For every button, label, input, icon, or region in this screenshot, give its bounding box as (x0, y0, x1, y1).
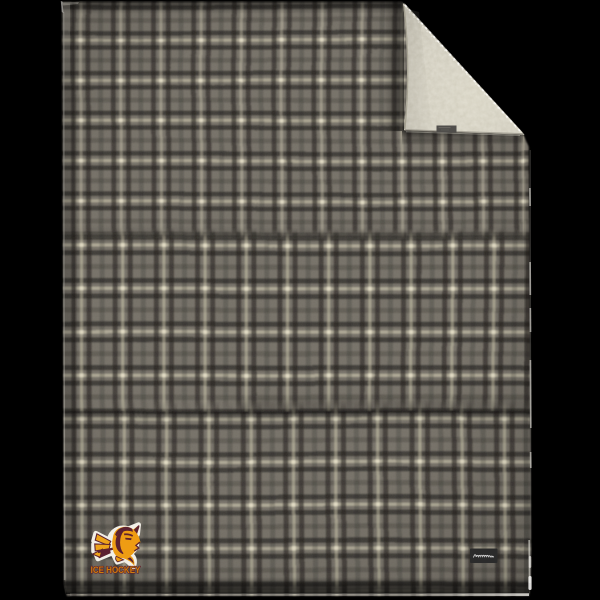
svg-text:ICE HOCKEY: ICE HOCKEY (91, 564, 141, 575)
